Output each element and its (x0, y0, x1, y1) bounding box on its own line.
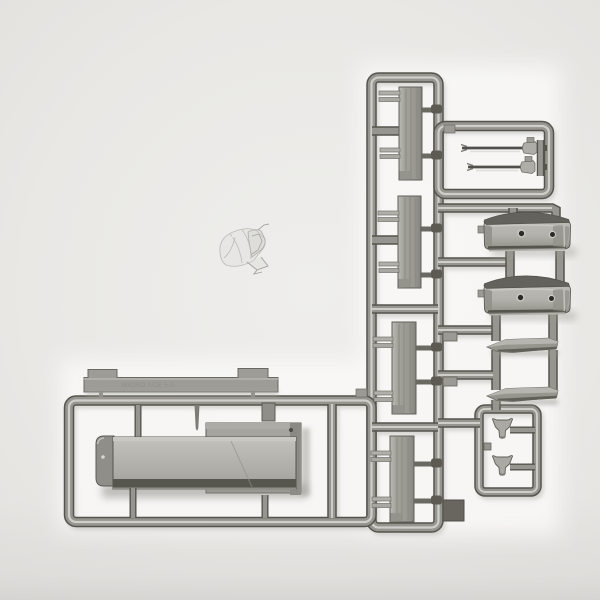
svg-text:MICRO ACE 5-0: MICRO ACE 5-0 (122, 382, 175, 389)
